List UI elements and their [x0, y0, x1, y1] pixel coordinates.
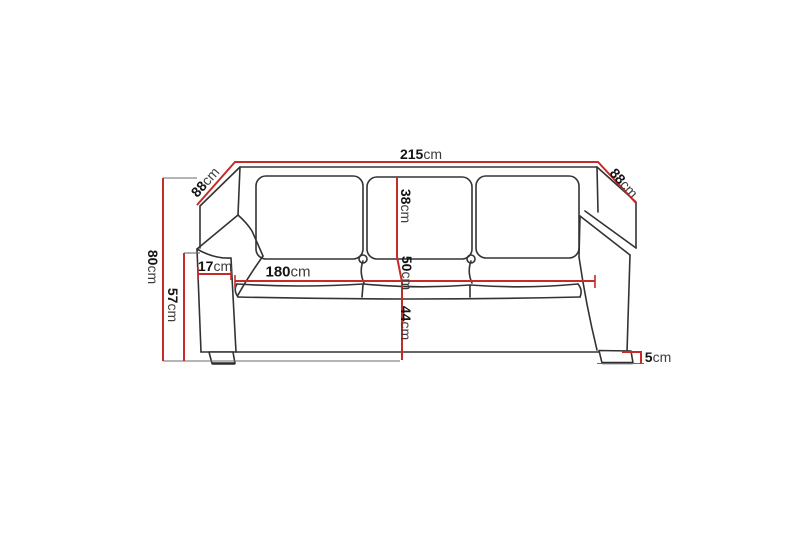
dimension-label-arm-height: 57cm	[166, 288, 180, 322]
right-armrest-inner-front-edge	[579, 257, 597, 350]
back-cushions	[256, 176, 579, 263]
dimension-unit: cm	[423, 146, 442, 162]
dimension-unit: cm	[398, 321, 414, 340]
dimension-unit: cm	[213, 258, 232, 274]
right-armrest-outer-front-edge	[627, 255, 630, 352]
seat-front-bottom-edge	[238, 297, 580, 299]
dimension-value: 17	[198, 258, 214, 274]
dimension-value: 180	[265, 264, 290, 281]
dimension-label-seat-depth: 50cm	[400, 256, 414, 290]
seat-front-divider-left	[362, 285, 363, 297]
right-armrest-inner-top-edge	[580, 216, 630, 255]
dimension-label-total-width: 215cm	[400, 147, 442, 161]
dimension-label-total-height: 80cm	[146, 250, 160, 284]
sofa-back-left-edge	[238, 167, 240, 215]
dimension-label-arm-width: 17cm	[198, 259, 232, 273]
dimension-value: 5	[645, 349, 653, 365]
dimension-label-leg-height: 5cm	[645, 350, 671, 364]
dimension-unit: cm	[398, 204, 414, 223]
dimension-value: 215	[400, 146, 423, 162]
dimension-value: 50	[399, 256, 415, 272]
dimension-value: 38	[398, 189, 414, 205]
dimension-label-seat-height: 44cm	[399, 306, 413, 340]
seat-front-right-corner	[578, 284, 581, 297]
dimension-value: 57	[165, 288, 181, 304]
dimension-unit: cm	[399, 271, 415, 290]
dimension-value: 80	[145, 250, 161, 266]
left-armrest-front-top-edge	[197, 249, 231, 258]
dimension-unit: cm	[653, 349, 672, 365]
seat-divider-left	[361, 261, 364, 283]
left-front-leg	[209, 352, 235, 364]
back-cushion-left	[256, 176, 363, 259]
dimension-unit: cm	[291, 264, 311, 281]
dimension-unit: cm	[165, 303, 181, 322]
left-armrest-seat-seam	[238, 256, 263, 295]
sofa-back-right-edge	[597, 167, 598, 212]
left-armrest	[197, 215, 263, 352]
dimension-value: 44	[398, 306, 414, 322]
back-cushion-right	[476, 176, 579, 258]
dimension-unit: cm	[145, 265, 161, 284]
back-cushion-middle	[367, 177, 472, 259]
seat-divider-right	[469, 261, 472, 283]
dimension-label-seat-width: 180cm	[265, 265, 310, 280]
left-armrest-outer-top-edge	[197, 215, 238, 249]
right-armrest-outer-top-edge	[585, 211, 636, 248]
sofa-dimension-diagram: 215cm 88cm 88cm 80cm 57cm 17cm 180cm 38c…	[0, 0, 800, 533]
right-armrest-inner-edge	[579, 216, 580, 257]
dimension-label-backrest-height: 38cm	[399, 189, 413, 223]
